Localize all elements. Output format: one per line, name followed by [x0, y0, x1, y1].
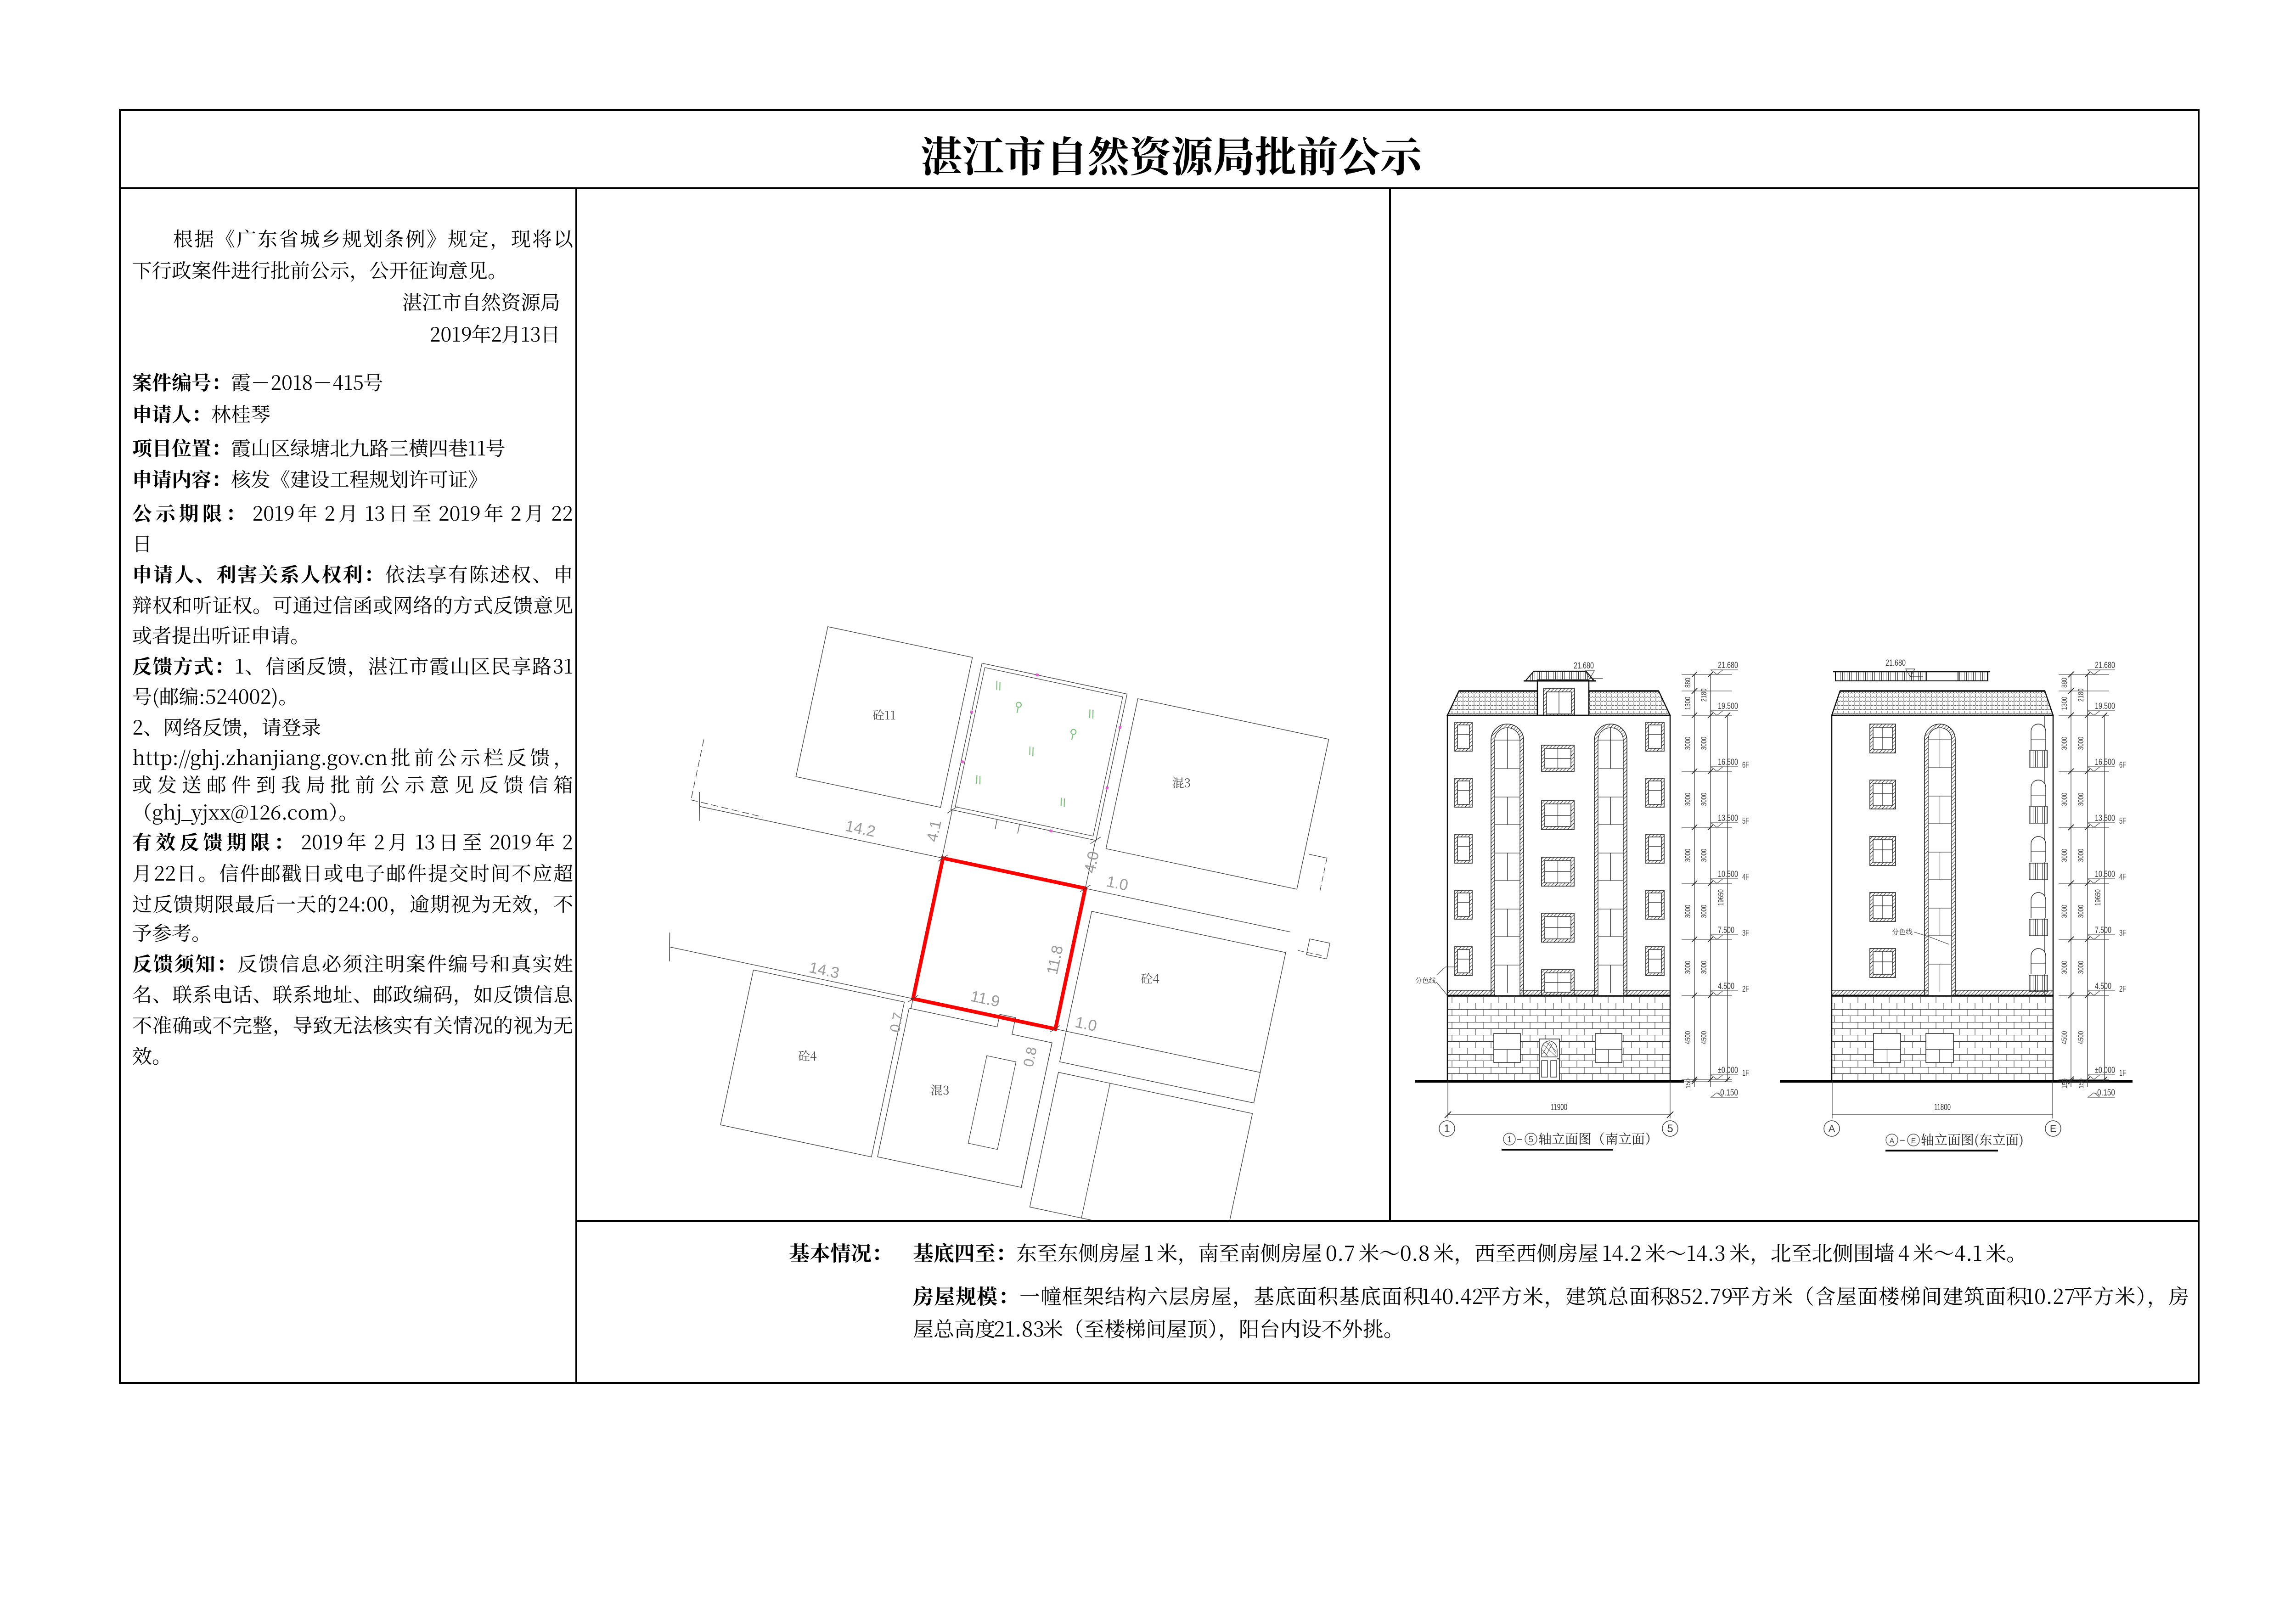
- svg-text:±0.000: ±0.000: [2095, 1066, 2115, 1075]
- svg-text:3000: 3000: [2077, 961, 2085, 974]
- svg-text:4500: 4500: [2077, 1031, 2085, 1045]
- svg-text:3000: 3000: [1683, 905, 1692, 918]
- svg-text:4F: 4F: [2119, 872, 2126, 882]
- svg-text:3000: 3000: [2060, 793, 2069, 806]
- svg-text:5F: 5F: [1742, 816, 1749, 826]
- svg-text:混3: 混3: [931, 1081, 949, 1098]
- svg-text:16.500: 16.500: [1718, 758, 1738, 767]
- svg-text:3000: 3000: [1699, 905, 1708, 918]
- svg-text:4.1: 4.1: [923, 819, 945, 843]
- svg-text:轴立面图（南立面）: 轴立面图（南立面）: [1538, 1129, 1658, 1148]
- svg-text:3000: 3000: [1683, 961, 1692, 974]
- svg-text:−: −: [1899, 1134, 1905, 1146]
- svg-text:13.500: 13.500: [2095, 814, 2115, 823]
- svg-text:2F: 2F: [1742, 984, 1749, 994]
- svg-text:7.500: 7.500: [2095, 926, 2111, 935]
- svg-text:4500: 4500: [1699, 1031, 1708, 1045]
- svg-text:19.500: 19.500: [2095, 702, 2115, 711]
- svg-text:19650: 19650: [2093, 889, 2102, 906]
- svg-text:4F: 4F: [1742, 872, 1749, 882]
- svg-text:150: 150: [1684, 1078, 1692, 1089]
- svg-text:3000: 3000: [2077, 737, 2085, 750]
- svg-text:2180: 2180: [1699, 689, 1708, 702]
- svg-text:11.8: 11.8: [1043, 944, 1066, 976]
- svg-text:A: A: [1890, 1137, 1895, 1145]
- svg-text:3000: 3000: [1683, 849, 1692, 862]
- svg-text:11800: 11800: [1934, 1102, 1951, 1112]
- svg-text:1F: 1F: [1742, 1068, 1749, 1078]
- svg-text:A: A: [1829, 1123, 1835, 1134]
- svg-text:5: 5: [1667, 1123, 1673, 1135]
- svg-text:2180: 2180: [2077, 689, 2085, 702]
- svg-text:10.500: 10.500: [1718, 870, 1738, 879]
- svg-text:21.680: 21.680: [2095, 661, 2115, 670]
- svg-text:砼11: 砼11: [872, 706, 896, 723]
- svg-text:5F: 5F: [2119, 816, 2126, 826]
- svg-text:6F: 6F: [2119, 760, 2126, 769]
- svg-text:16.500: 16.500: [2095, 758, 2115, 767]
- svg-text:3000: 3000: [1699, 849, 1708, 862]
- svg-text:10.500: 10.500: [2095, 870, 2115, 879]
- svg-text:150: 150: [2061, 1078, 2069, 1089]
- svg-text:1F: 1F: [2119, 1068, 2126, 1078]
- svg-text:14.3: 14.3: [808, 959, 841, 982]
- svg-text:3000: 3000: [1699, 961, 1708, 974]
- svg-text:1300: 1300: [2060, 697, 2069, 710]
- svg-text:砼4: 砼4: [798, 1047, 816, 1064]
- svg-text:880: 880: [2060, 678, 2069, 688]
- svg-text:3000: 3000: [2060, 737, 2069, 750]
- svg-text:0.7: 0.7: [887, 1011, 906, 1033]
- svg-text:7.500: 7.500: [1718, 926, 1734, 935]
- svg-text:3000: 3000: [1699, 737, 1708, 750]
- svg-text:-0.150: -0.150: [1718, 1088, 1738, 1098]
- svg-text:3000: 3000: [2060, 849, 2069, 862]
- svg-text:5: 5: [1529, 1135, 1533, 1144]
- svg-text:19650: 19650: [1716, 889, 1725, 906]
- svg-text:4.0: 4.0: [1081, 850, 1103, 875]
- svg-text:21.680: 21.680: [1574, 661, 1594, 671]
- svg-text:1.0: 1.0: [1105, 873, 1130, 894]
- svg-text:14.2: 14.2: [844, 817, 877, 841]
- svg-text:13.500: 13.500: [1718, 814, 1738, 823]
- svg-text:19.500: 19.500: [1718, 702, 1738, 711]
- svg-text:4500: 4500: [2060, 1031, 2069, 1045]
- svg-text:3F: 3F: [1742, 928, 1749, 938]
- svg-text:11900: 11900: [1551, 1102, 1567, 1112]
- svg-text:±0.000: ±0.000: [1718, 1066, 1738, 1075]
- svg-text:1300: 1300: [1683, 697, 1692, 710]
- svg-text:4.500: 4.500: [1718, 982, 1734, 991]
- svg-text:11.9: 11.9: [969, 988, 1002, 1011]
- svg-text:3000: 3000: [2060, 905, 2069, 918]
- svg-text:21.680: 21.680: [1885, 658, 1906, 668]
- svg-text:1.0: 1.0: [1074, 1013, 1098, 1035]
- svg-text:砼4: 砼4: [1141, 970, 1159, 987]
- svg-text:3F: 3F: [2119, 928, 2126, 938]
- svg-text:1: 1: [1444, 1123, 1450, 1135]
- svg-text:2F: 2F: [2119, 984, 2126, 994]
- svg-text:3000: 3000: [2060, 961, 2069, 974]
- svg-text:-0.150: -0.150: [2095, 1088, 2115, 1098]
- svg-text:150: 150: [2077, 1078, 2085, 1089]
- svg-text:3000: 3000: [1699, 793, 1708, 806]
- svg-text:−: −: [1517, 1134, 1523, 1145]
- svg-text:E: E: [2050, 1123, 2056, 1134]
- svg-text:分色线: 分色线: [1415, 976, 1436, 985]
- svg-text:21.680: 21.680: [1718, 661, 1738, 670]
- svg-text:E: E: [1911, 1137, 1916, 1145]
- svg-text:4.500: 4.500: [2095, 982, 2111, 991]
- svg-text:880: 880: [1683, 678, 1692, 688]
- svg-text:分色线: 分色线: [1892, 927, 1913, 937]
- svg-text:3000: 3000: [2077, 849, 2085, 862]
- svg-text:3000: 3000: [1683, 793, 1692, 806]
- svg-text:3000: 3000: [2077, 793, 2085, 806]
- svg-text:0.8: 0.8: [1020, 1045, 1040, 1068]
- svg-text:混3: 混3: [1172, 774, 1191, 791]
- svg-text:3000: 3000: [2077, 905, 2085, 918]
- svg-text:轴立面图(东立面): 轴立面图(东立面): [1921, 1130, 2024, 1149]
- svg-text:3000: 3000: [1683, 737, 1692, 750]
- svg-text:4500: 4500: [1683, 1031, 1692, 1045]
- svg-text:1: 1: [1507, 1135, 1512, 1144]
- svg-text:6F: 6F: [1742, 760, 1749, 769]
